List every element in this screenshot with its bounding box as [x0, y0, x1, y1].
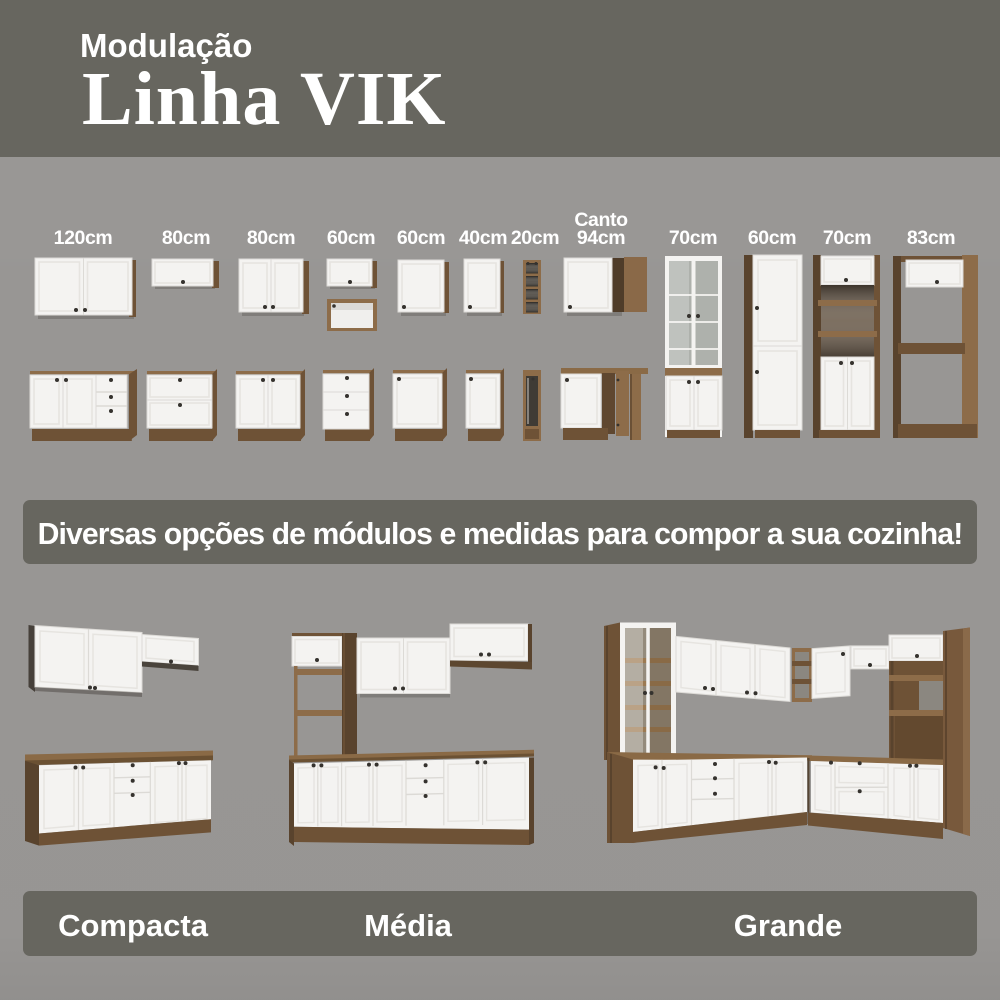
svg-text:Grande: Grande	[734, 908, 843, 943]
svg-text:40cm: 40cm	[459, 227, 507, 249]
svg-text:70cm: 70cm	[669, 227, 717, 249]
svg-text:70cm: 70cm	[823, 227, 871, 249]
svg-text:94cm: 94cm	[577, 227, 625, 249]
svg-text:Média: Média	[364, 908, 453, 943]
svg-text:60cm: 60cm	[748, 227, 796, 249]
svg-text:60cm: 60cm	[327, 227, 375, 249]
svg-text:60cm: 60cm	[397, 227, 445, 249]
svg-text:120cm: 120cm	[54, 227, 113, 249]
svg-text:Compacta: Compacta	[58, 908, 209, 943]
svg-text:83cm: 83cm	[907, 227, 955, 249]
svg-text:80cm: 80cm	[162, 227, 210, 249]
svg-text:Diversas opções de módulos e m: Diversas opções de módulos e medidas par…	[38, 518, 963, 551]
svg-text:80cm: 80cm	[247, 227, 295, 249]
svg-text:20cm: 20cm	[511, 227, 559, 249]
svg-text:Linha VIK: Linha VIK	[82, 57, 447, 141]
